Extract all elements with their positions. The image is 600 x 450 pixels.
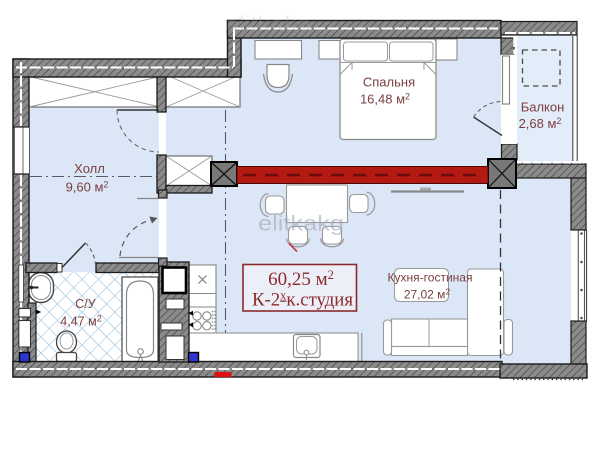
svg-text:elitkakg: elitkakg: [225, 12, 311, 36]
svg-text:Холл: Холл: [74, 161, 105, 176]
svg-text:60,25 м2: 60,25 м2: [268, 268, 334, 290]
svg-text:16,48 м2: 16,48 м2: [360, 92, 410, 107]
svg-text:К-2хк.студия: К-2хк.студия: [252, 289, 353, 311]
svg-text:2,68 м2: 2,68 м2: [519, 116, 562, 131]
svg-text:27,02 м2: 27,02 м2: [404, 287, 451, 302]
svg-text:С/У: С/У: [75, 297, 96, 311]
svg-text:4,47 м2: 4,47 м2: [60, 314, 101, 329]
svg-text:Балкон: Балкон: [521, 100, 565, 115]
svg-text:elitkakg: elitkakg: [258, 212, 344, 236]
svg-text:Спальня: Спальня: [363, 75, 415, 90]
svg-text:Кухня-гостиная: Кухня-гостиная: [388, 271, 473, 285]
svg-text:9,60 м2: 9,60 м2: [66, 180, 109, 195]
